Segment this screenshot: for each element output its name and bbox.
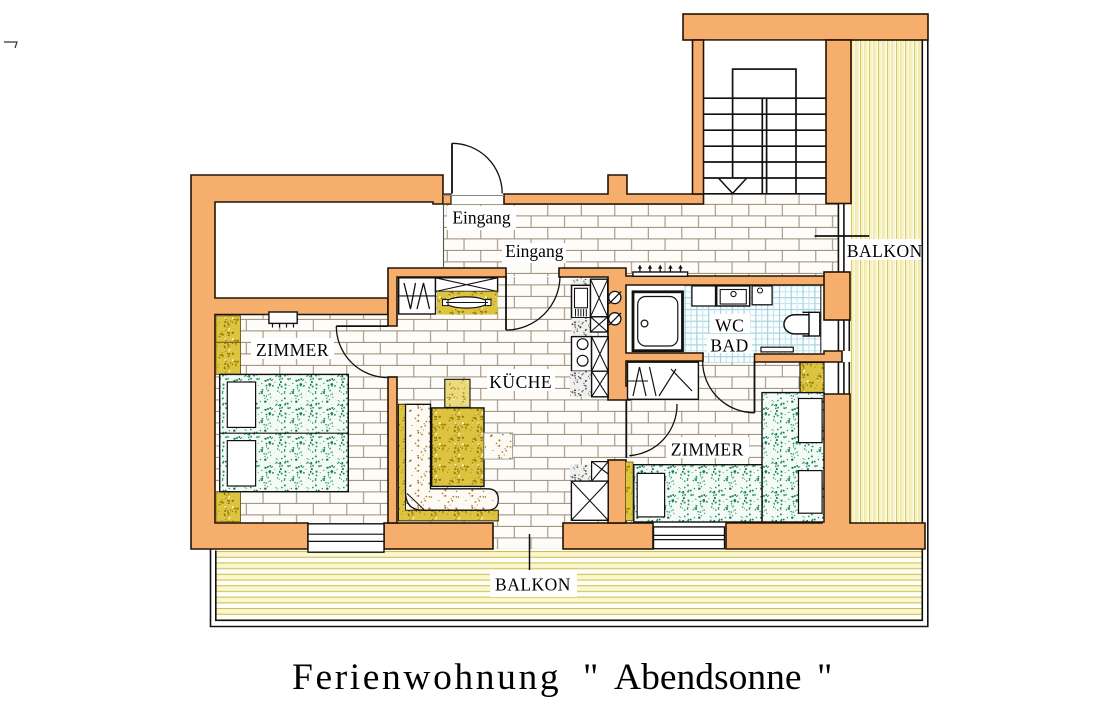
svg-text:ZIMMER: ZIMMER xyxy=(671,440,744,460)
svg-text:BALKON: BALKON xyxy=(495,575,571,595)
svg-text:ZIMMER: ZIMMER xyxy=(256,340,329,360)
svg-text:Eingang: Eingang xyxy=(505,241,564,261)
svg-text:Eingang: Eingang xyxy=(452,208,511,228)
svg-text:BAD: BAD xyxy=(710,336,748,356)
svg-text:BALKON: BALKON xyxy=(847,241,923,261)
svg-text:WC: WC xyxy=(715,316,744,336)
svg-text:KÜCHE: KÜCHE xyxy=(489,372,552,392)
